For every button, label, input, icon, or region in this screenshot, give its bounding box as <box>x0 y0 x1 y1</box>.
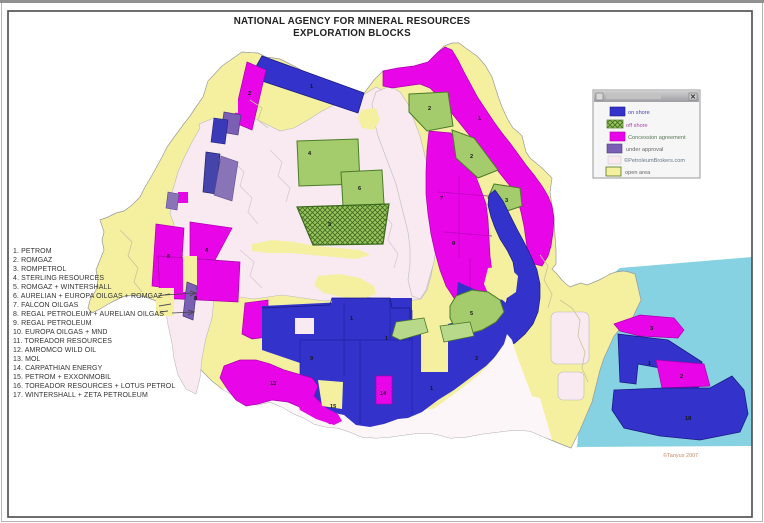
svg-text:2. ROMGAZ: 2. ROMGAZ <box>13 257 53 264</box>
svg-text:8. REGAL PETROLEUM + AURELIAN: 8. REGAL PETROLEUM + AURELIAN OILGAS <box>13 311 164 318</box>
svg-text:9. REGAL PETROLEUM: 9. REGAL PETROLEUM <box>13 320 92 327</box>
svg-text:1. PETROM: 1. PETROM <box>13 248 52 255</box>
svg-text:10. EUROPA OILGAS + MND: 10. EUROPA OILGAS + MND <box>13 329 108 336</box>
svg-text:6. AURELIAN + EUROPA OILGAS +: 6. AURELIAN + EUROPA OILGAS + ROMGAZ <box>13 293 163 300</box>
svg-text:13. MOL: 13. MOL <box>13 356 41 363</box>
svg-text:on shore: on shore <box>628 110 650 116</box>
svg-text:3: 3 <box>650 326 653 332</box>
svg-text:17. WINTERSHALL + ZETA PETROLE: 17. WINTERSHALL + ZETA PETROLEUM <box>13 392 148 399</box>
svg-text:2: 2 <box>248 91 251 97</box>
svg-text:11. TOREADOR RESOURCES: 11. TOREADOR RESOURCES <box>13 338 112 345</box>
svg-text:1: 1 <box>478 116 481 122</box>
svg-text:2: 2 <box>470 154 473 160</box>
svg-text:8: 8 <box>194 296 197 302</box>
svg-text:12. AMROMCO WILD OIL: 12. AMROMCO WILD OIL <box>13 347 96 354</box>
svg-text:3: 3 <box>328 222 331 228</box>
svg-text:1: 1 <box>350 316 353 322</box>
svg-text:3. ROMPETROL: 3. ROMPETROL <box>13 266 66 273</box>
svg-text:15: 15 <box>330 404 336 410</box>
svg-text:1: 1 <box>430 386 433 392</box>
svg-text:7: 7 <box>440 196 443 202</box>
svg-text:14: 14 <box>380 391 387 397</box>
svg-text:5: 5 <box>470 311 473 317</box>
svg-text:4. STERLING RESOURCES: 4. STERLING RESOURCES <box>13 275 104 282</box>
svg-text:5. ROMGAZ + WINTERSHALL: 5. ROMGAZ + WINTERSHALL <box>13 284 112 291</box>
svg-text:off shore: off shore <box>626 123 648 129</box>
svg-text:18: 18 <box>685 416 691 422</box>
svg-text:Concession agreement: Concession agreement <box>628 135 686 141</box>
svg-text:16. TOREADOR RESOURCES + LOTUS: 16. TOREADOR RESOURCES + LOTUS PETROL <box>13 383 175 390</box>
svg-text:2: 2 <box>428 106 431 112</box>
svg-text:2: 2 <box>680 374 683 380</box>
svg-text:NATIONAL AGENCY FOR MINERAL RE: NATIONAL AGENCY FOR MINERAL RESOURCES <box>234 16 471 27</box>
svg-text:5: 5 <box>167 254 170 260</box>
svg-text:©PetroleumBrokers.com: ©PetroleumBrokers.com <box>624 157 685 164</box>
svg-text:open area: open area <box>625 170 651 176</box>
svg-text:7. FALCON OILGAS: 7. FALCON OILGAS <box>13 302 79 309</box>
svg-text:9: 9 <box>452 241 455 247</box>
svg-text:13: 13 <box>270 381 276 387</box>
svg-text:EXPLORATION BLOCKS: EXPLORATION BLOCKS <box>293 28 411 39</box>
svg-text:©Tanyus 2007: ©Tanyus 2007 <box>663 452 698 459</box>
svg-text:1: 1 <box>385 336 388 342</box>
svg-text:3: 3 <box>505 198 508 204</box>
svg-text:1: 1 <box>310 84 313 90</box>
svg-text:under approval: under approval <box>626 147 663 153</box>
svg-text:9: 9 <box>310 356 313 362</box>
svg-text:6: 6 <box>358 186 361 192</box>
svg-text:1: 1 <box>648 361 651 367</box>
svg-text:15. PETROM + EXXONMOBIL: 15. PETROM + EXXONMOBIL <box>13 374 111 381</box>
svg-text:14. CARPATHIAN ENERGY: 14. CARPATHIAN ENERGY <box>13 365 103 372</box>
svg-text:2: 2 <box>475 356 478 362</box>
